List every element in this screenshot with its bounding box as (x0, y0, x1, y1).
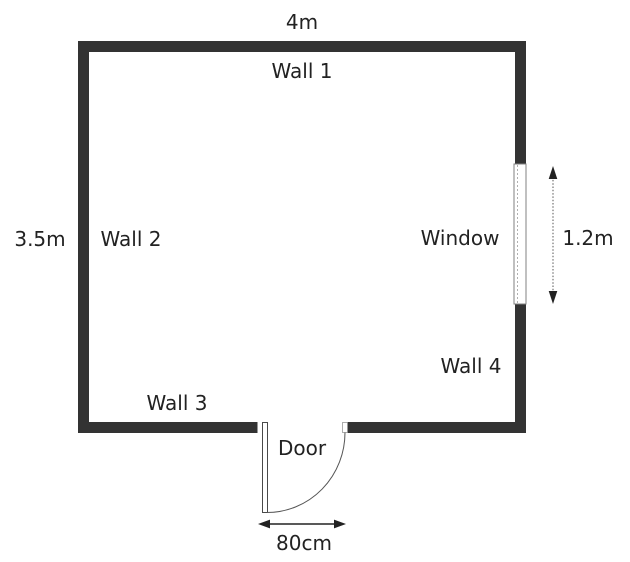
arrowhead-down-icon (549, 291, 558, 304)
door-symbol (258, 421, 348, 513)
wall-1-label: Wall 1 (272, 61, 333, 81)
door-jamb-right (343, 423, 348, 433)
door-opening (258, 421, 348, 435)
window-dimension-label: 1.2m (562, 228, 613, 248)
wall-3-label: Wall 3 (147, 393, 208, 413)
window-symbol (514, 164, 526, 304)
window-frame (514, 164, 526, 304)
window-dimension-arrow (549, 166, 558, 304)
arrowhead-up-icon (549, 166, 558, 179)
arrowhead-right-icon (334, 520, 346, 529)
floor-plan-symbols (0, 0, 630, 562)
window-label: Window (421, 228, 500, 248)
floor-plan-diagram: 4m Wall 1 3.5m Wall 2 Window 1.2m Wall 4… (0, 0, 630, 562)
wall-2-label: Wall 2 (101, 229, 162, 249)
width-dimension-label: 4m (286, 12, 318, 32)
door-dimension-arrow (258, 520, 346, 529)
door-label: Door (278, 438, 326, 458)
door-leaf (263, 423, 268, 513)
door-dimension-label: 80cm (276, 533, 332, 553)
arrowhead-left-icon (258, 520, 270, 529)
height-dimension-label: 3.5m (14, 229, 65, 249)
wall-4-label: Wall 4 (441, 356, 502, 376)
